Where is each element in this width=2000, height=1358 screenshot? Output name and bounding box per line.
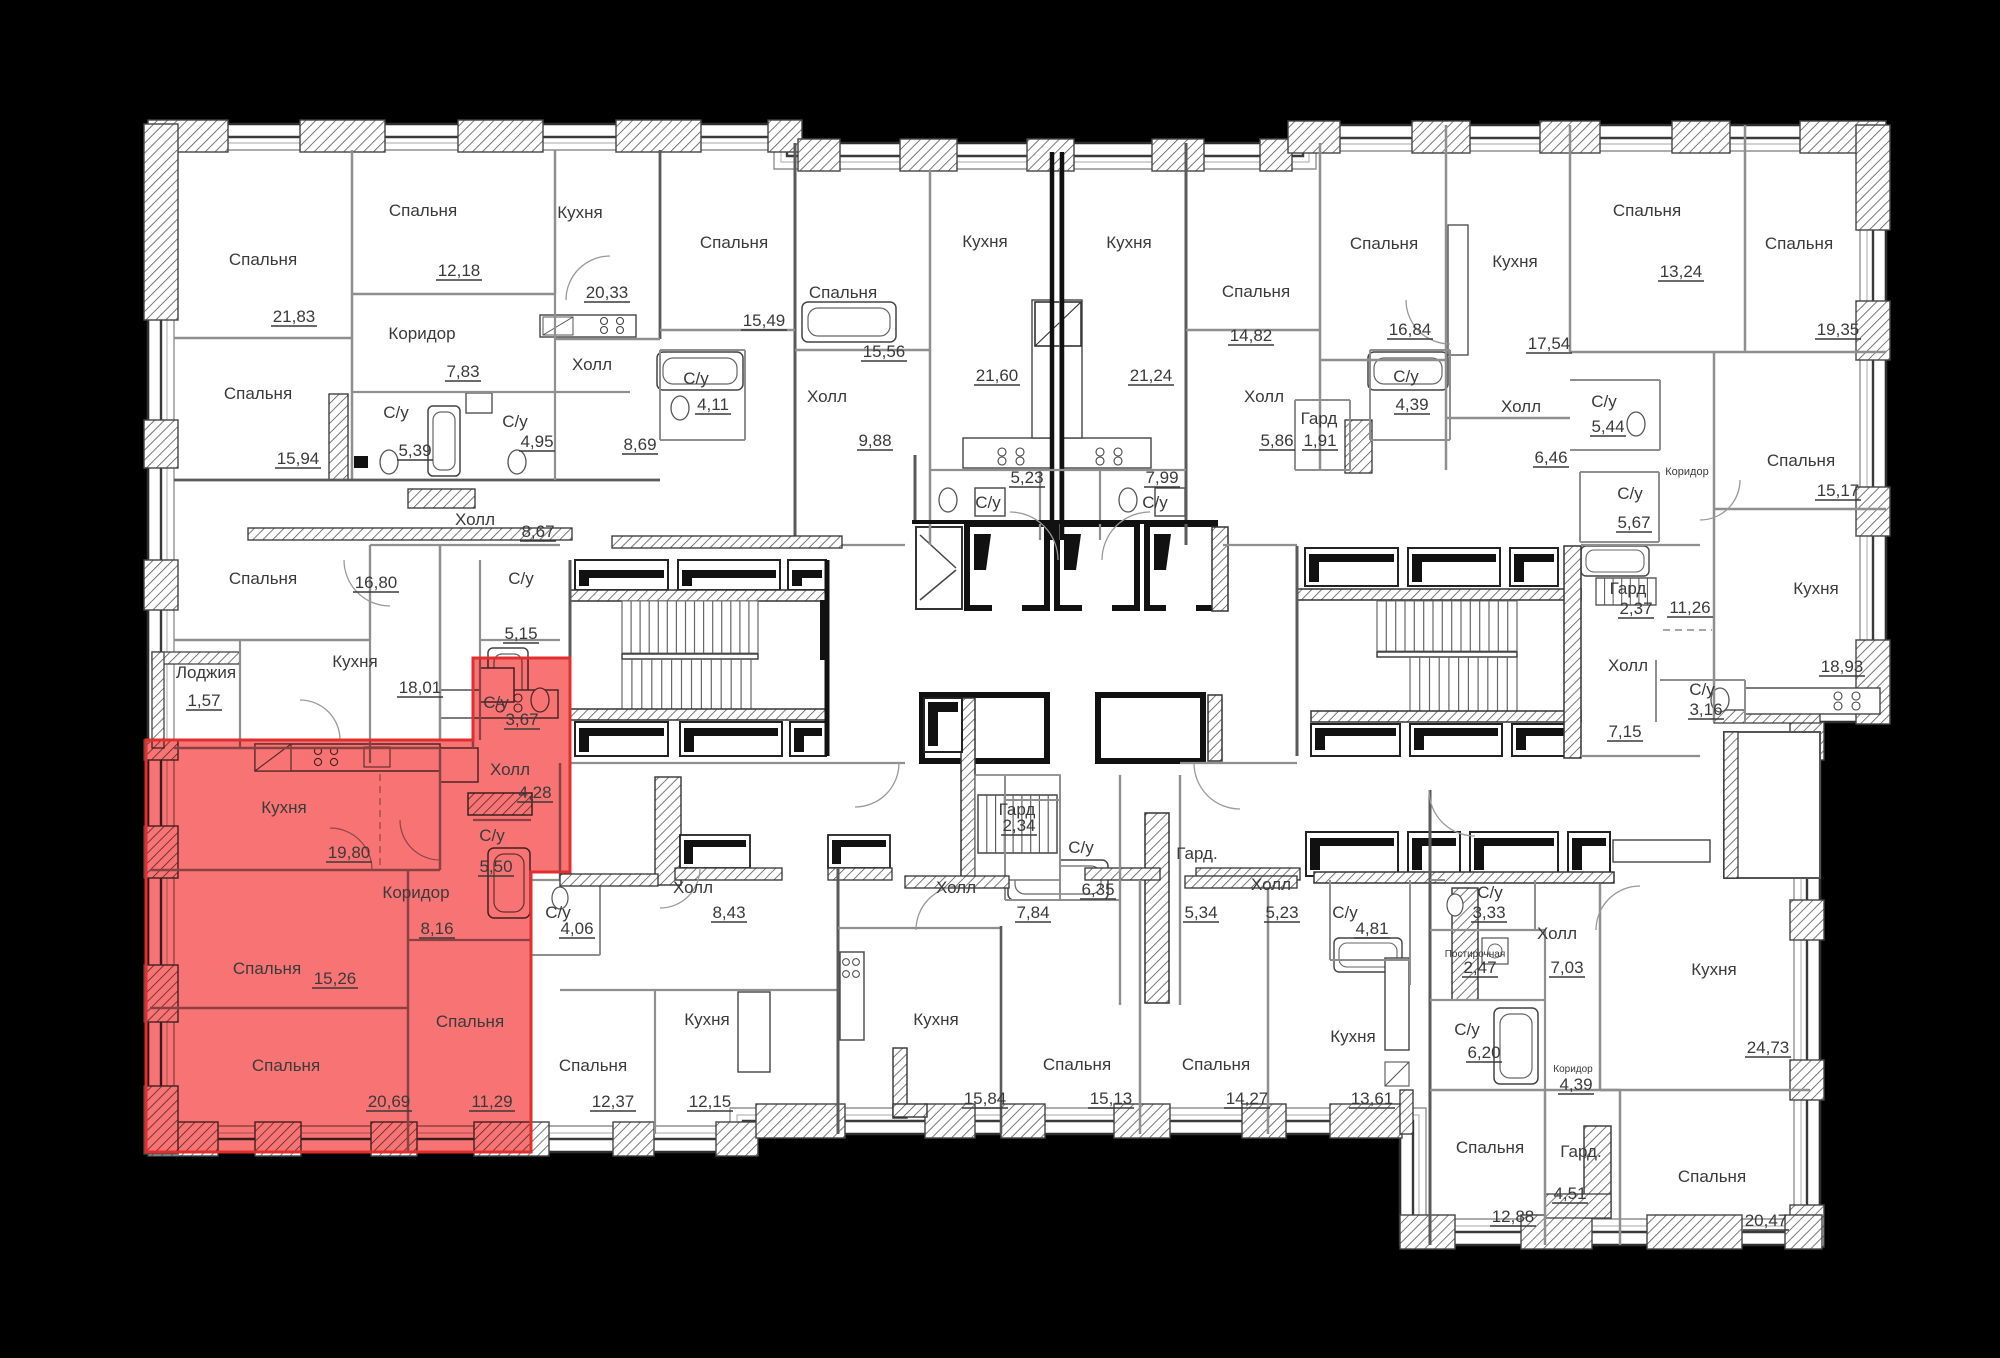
svg-text:2,34: 2,34 (1002, 816, 1035, 835)
svg-text:12,15: 12,15 (689, 1092, 732, 1111)
svg-text:5,15: 5,15 (504, 624, 537, 643)
svg-text:Кухня: Кухня (913, 1010, 959, 1029)
svg-text:Холл: Холл (1537, 924, 1577, 943)
svg-text:С/у: С/у (508, 569, 534, 588)
svg-text:Спальня: Спальня (224, 384, 292, 403)
svg-text:Кухня: Кухня (332, 652, 378, 671)
svg-text:Холл: Холл (572, 355, 612, 374)
svg-text:Коридор: Коридор (1665, 466, 1708, 478)
svg-text:4,28: 4,28 (518, 783, 551, 802)
svg-text:1,57: 1,57 (187, 691, 220, 710)
svg-text:4,51: 4,51 (1553, 1184, 1586, 1203)
svg-text:20,47: 20,47 (1745, 1211, 1788, 1230)
svg-text:5,34: 5,34 (1184, 903, 1217, 922)
svg-text:5,86: 5,86 (1260, 431, 1293, 450)
svg-text:21,24: 21,24 (1130, 366, 1173, 385)
svg-text:Лоджия: Лоджия (176, 663, 236, 682)
svg-text:6,35: 6,35 (1081, 880, 1114, 899)
svg-text:Спальня: Спальня (1765, 234, 1833, 253)
svg-text:14,27: 14,27 (1226, 1089, 1269, 1108)
svg-text:14,82: 14,82 (1230, 326, 1273, 345)
svg-text:15,84: 15,84 (964, 1089, 1007, 1108)
svg-text:Холл: Холл (1608, 656, 1648, 675)
svg-text:Коридор: Коридор (382, 883, 449, 902)
svg-text:8,69: 8,69 (623, 435, 656, 454)
svg-text:21,83: 21,83 (273, 307, 316, 326)
svg-text:19,35: 19,35 (1817, 320, 1860, 339)
svg-text:6,20: 6,20 (1467, 1043, 1500, 1062)
svg-text:21,60: 21,60 (976, 366, 1019, 385)
svg-text:12,18: 12,18 (438, 261, 481, 280)
svg-text:3,33: 3,33 (1472, 903, 1505, 922)
svg-text:Спальня: Спальня (1678, 1167, 1746, 1186)
svg-text:С/у: С/у (1393, 367, 1419, 386)
svg-text:Кухня: Кухня (962, 232, 1008, 251)
svg-text:15,13: 15,13 (1090, 1089, 1133, 1108)
svg-text:Спальня: Спальня (229, 569, 297, 588)
svg-text:Спальня: Спальня (1613, 201, 1681, 220)
svg-text:6,46: 6,46 (1534, 448, 1567, 467)
svg-text:13,61: 13,61 (1351, 1089, 1394, 1108)
svg-text:15,56: 15,56 (863, 342, 906, 361)
svg-text:5,23: 5,23 (1265, 903, 1298, 922)
svg-text:5,50: 5,50 (479, 857, 512, 876)
svg-text:7,15: 7,15 (1608, 722, 1641, 741)
svg-text:16,80: 16,80 (355, 573, 398, 592)
svg-text:Спальня: Спальня (252, 1056, 320, 1075)
svg-text:Спальня: Спальня (233, 959, 301, 978)
svg-text:Спальня: Спальня (700, 233, 768, 252)
svg-text:Кухня: Кухня (261, 798, 307, 817)
svg-text:Спальня: Спальня (389, 201, 457, 220)
svg-text:Холл: Холл (673, 878, 713, 897)
svg-text:С/у: С/у (1617, 484, 1643, 503)
svg-text:Спальня: Спальня (809, 283, 877, 302)
svg-text:4,95: 4,95 (520, 432, 553, 451)
svg-text:24,73: 24,73 (1747, 1038, 1790, 1057)
svg-text:Холл: Холл (936, 878, 976, 897)
svg-text:Кухня: Кухня (684, 1010, 730, 1029)
svg-text:5,23: 5,23 (1010, 468, 1043, 487)
svg-text:20,69: 20,69 (368, 1092, 411, 1111)
svg-text:8,16: 8,16 (420, 919, 453, 938)
svg-text:19,80: 19,80 (328, 843, 371, 862)
svg-text:18,01: 18,01 (399, 678, 442, 697)
svg-text:4,39: 4,39 (1395, 395, 1428, 414)
svg-text:20,33: 20,33 (586, 283, 629, 302)
svg-text:4,39: 4,39 (1559, 1075, 1592, 1094)
svg-text:11,26: 11,26 (1669, 598, 1710, 617)
svg-text:Спальня: Спальня (1456, 1138, 1524, 1157)
svg-text:Спальня: Спальня (559, 1056, 627, 1075)
svg-text:4,11: 4,11 (697, 395, 729, 414)
svg-text:Кухня: Кухня (1793, 579, 1839, 598)
svg-text:Холл: Холл (807, 387, 847, 406)
svg-text:4,81: 4,81 (1355, 919, 1388, 938)
svg-text:С/у: С/у (1591, 392, 1617, 411)
svg-text:1,91: 1,91 (1303, 431, 1336, 450)
svg-text:С/у: С/у (1689, 680, 1715, 699)
svg-text:17,54: 17,54 (1528, 334, 1571, 353)
svg-text:15,49: 15,49 (743, 311, 786, 330)
svg-text:2,37: 2,37 (1619, 599, 1652, 618)
svg-text:Гард: Гард (1301, 409, 1338, 428)
svg-text:Кухня: Кухня (1492, 252, 1538, 271)
svg-text:5,39: 5,39 (398, 441, 431, 460)
svg-text:Гард.: Гард. (1560, 1142, 1601, 1161)
svg-text:5,44: 5,44 (1591, 417, 1624, 436)
svg-text:Холл: Холл (490, 760, 530, 779)
svg-text:Гард.: Гард. (1176, 844, 1217, 863)
svg-text:Кухня: Кухня (1330, 1027, 1376, 1046)
svg-text:18,93: 18,93 (1821, 657, 1864, 676)
svg-text:Спальня: Спальня (1767, 451, 1835, 470)
svg-text:С/у: С/у (502, 412, 528, 431)
svg-text:15,17: 15,17 (1817, 481, 1860, 500)
svg-text:С/у: С/у (479, 826, 505, 845)
svg-text:Спальня: Спальня (1222, 282, 1290, 301)
svg-text:Холл: Холл (455, 510, 495, 529)
svg-text:С/у: С/у (683, 369, 709, 388)
svg-text:Коридор: Коридор (388, 324, 455, 343)
svg-text:С/у: С/у (1454, 1020, 1480, 1039)
svg-text:11,29: 11,29 (471, 1092, 512, 1111)
svg-text:8,67: 8,67 (521, 522, 554, 541)
svg-text:Спальня: Спальня (436, 1012, 504, 1031)
svg-text:Коридор: Коридор (1553, 1064, 1593, 1075)
svg-text:12,37: 12,37 (592, 1092, 635, 1111)
svg-text:Холл: Холл (1244, 387, 1284, 406)
svg-text:9,88: 9,88 (858, 431, 891, 450)
svg-text:15,26: 15,26 (314, 969, 357, 988)
svg-text:7,83: 7,83 (446, 362, 479, 381)
svg-text:С/у: С/у (975, 493, 1001, 512)
svg-text:7,03: 7,03 (1550, 958, 1583, 977)
svg-text:С/у: С/у (383, 403, 409, 422)
svg-text:15,94: 15,94 (277, 449, 320, 468)
svg-text:Спальня: Спальня (1043, 1055, 1111, 1074)
svg-text:7,84: 7,84 (1016, 903, 1049, 922)
svg-text:Спальня: Спальня (1182, 1055, 1250, 1074)
svg-text:12,88: 12,88 (1492, 1207, 1535, 1226)
svg-text:Спальня: Спальня (229, 250, 297, 269)
svg-text:3,16: 3,16 (1689, 700, 1722, 719)
svg-text:С/у: С/у (1477, 883, 1503, 902)
svg-text:Кухня: Кухня (1106, 233, 1152, 252)
svg-text:Кухня: Кухня (1691, 960, 1737, 979)
svg-text:13,24: 13,24 (1660, 262, 1703, 281)
svg-text:С/у: С/у (1068, 838, 1094, 857)
svg-text:2,47: 2,47 (1463, 958, 1496, 977)
svg-text:Спальня: Спальня (1350, 234, 1418, 253)
svg-text:7,99: 7,99 (1145, 468, 1178, 487)
svg-text:Кухня: Кухня (557, 203, 603, 222)
svg-text:3,67: 3,67 (505, 710, 538, 729)
svg-text:4,06: 4,06 (560, 919, 593, 938)
svg-text:Холл: Холл (1251, 875, 1291, 894)
svg-text:Холл: Холл (1501, 397, 1541, 416)
svg-text:5,67: 5,67 (1617, 513, 1650, 532)
svg-text:Гард: Гард (1610, 579, 1647, 598)
svg-text:С/у: С/у (1332, 903, 1358, 922)
svg-text:8,43: 8,43 (712, 903, 745, 922)
svg-text:16,84: 16,84 (1389, 320, 1432, 339)
svg-text:С/у: С/у (1142, 493, 1168, 512)
